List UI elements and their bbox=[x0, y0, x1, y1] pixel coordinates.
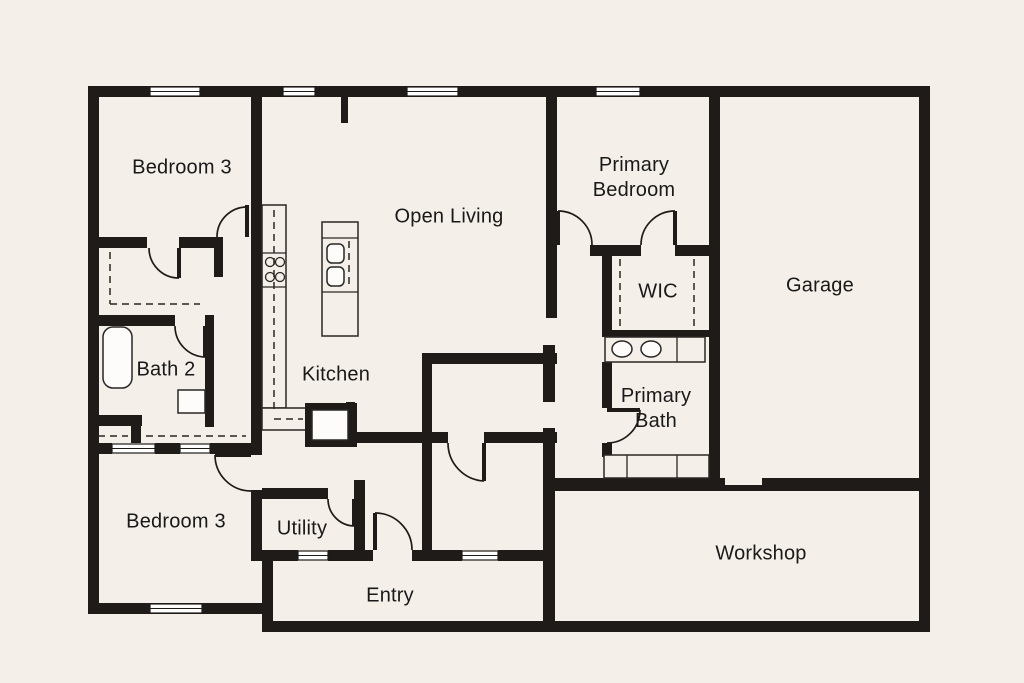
window-bedroom3-upper-icon bbox=[150, 87, 200, 96]
kitchen-island bbox=[322, 222, 358, 336]
sliding-closet-door-left-icon bbox=[112, 444, 155, 453]
door-closet-upper-icon bbox=[149, 248, 181, 278]
window-utility-entry-icon bbox=[298, 551, 328, 560]
door-flex-room-icon bbox=[448, 443, 486, 481]
door-wic-icon bbox=[641, 211, 677, 245]
door-bedroom3-upper-icon bbox=[217, 205, 249, 237]
door-front-entry-icon bbox=[373, 513, 412, 550]
floor-plan-canvas bbox=[0, 0, 1024, 683]
primary-bath-fixtures bbox=[604, 337, 709, 478]
floor-plan: Bedroom 3Open LivingPrimary BedroomGarag… bbox=[0, 0, 1024, 683]
window-primary-bedroom-icon bbox=[596, 87, 640, 96]
window-bedroom3-lower-icon bbox=[150, 604, 202, 613]
window-flex-entry-icon bbox=[462, 551, 498, 560]
window-kitchen-icon bbox=[283, 87, 315, 96]
door-primary-bath-icon bbox=[607, 408, 640, 443]
walk-in-shower-icon bbox=[604, 455, 709, 478]
bathtub-icon bbox=[103, 327, 132, 388]
doors bbox=[149, 205, 677, 550]
door-primary-bedroom-icon bbox=[556, 211, 592, 245]
interior-walls bbox=[88, 86, 919, 632]
toilet-icon bbox=[178, 390, 205, 413]
bath2-fixtures bbox=[103, 327, 205, 413]
sliding-closet-door-right-icon bbox=[180, 444, 210, 453]
double-sink-vanity-icon bbox=[605, 337, 705, 362]
door-bath2-icon bbox=[175, 326, 207, 357]
door-utility-icon bbox=[328, 499, 356, 526]
range-oven-icon bbox=[305, 403, 357, 447]
window-open-living-icon bbox=[407, 87, 458, 96]
door-bedroom3-lower-icon bbox=[215, 453, 251, 491]
kitchen-fixtures bbox=[262, 205, 358, 447]
island-sink-icon bbox=[327, 244, 344, 263]
